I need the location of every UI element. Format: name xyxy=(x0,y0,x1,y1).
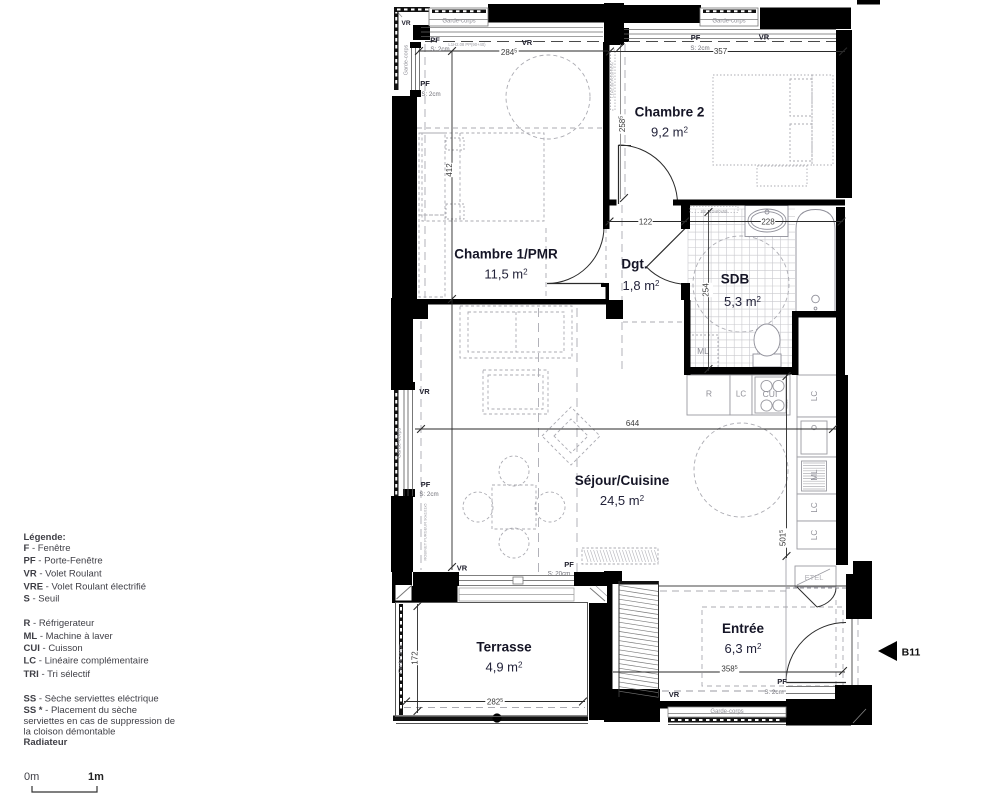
svg-text:VR: VR xyxy=(419,387,430,396)
svg-text:Garde-corps.: Garde-corps. xyxy=(398,643,404,673)
svg-text:PF: PF xyxy=(691,33,701,42)
svg-text:Dgt.: Dgt. xyxy=(621,257,647,272)
svg-text:SDB: SDB xyxy=(721,272,750,287)
svg-text:122: 122 xyxy=(639,218,653,227)
svg-text:0m: 0m xyxy=(24,771,39,783)
svg-text:Chambre 2: Chambre 2 xyxy=(635,105,705,120)
svg-text:ETEL: ETEL xyxy=(805,573,824,582)
svg-text:1m: 1m xyxy=(88,771,104,783)
svg-text:VR: VR xyxy=(759,33,770,42)
svg-text:LC: LC xyxy=(810,502,819,512)
svg-text:VR: VR xyxy=(457,564,468,573)
svg-text:SS 112x60x55: SS 112x60x55 xyxy=(701,209,729,214)
svg-text:R: R xyxy=(706,389,712,399)
svg-text:6,3 m2: 6,3 m2 xyxy=(724,641,762,656)
svg-text:SS - Sèche serviettes eléctriq: SS - Sèche serviettes eléctrique xyxy=(24,694,159,705)
svg-text:PF: PF xyxy=(421,480,431,489)
svg-text:Garde-corps: Garde-corps xyxy=(710,709,743,715)
svg-text:ML: ML xyxy=(697,346,709,356)
svg-text:S: 2cm: S: 2cm xyxy=(764,689,783,696)
svg-text:S: 2cm: S: 2cm xyxy=(690,45,709,52)
svg-text:S: 2cm: S: 2cm xyxy=(430,46,449,53)
svg-text:LC: LC xyxy=(810,391,819,401)
svg-text:357: 357 xyxy=(714,47,728,56)
svg-text:S: 2cm: S: 2cm xyxy=(419,491,438,498)
svg-text:LC - Linéaire complémentaire: LC - Linéaire complémentaire xyxy=(24,656,149,667)
svg-text:TRI - Tri sélectif: TRI - Tri sélectif xyxy=(24,669,91,680)
svg-text:PF: PF xyxy=(420,79,430,88)
svg-text:4,9 m2: 4,9 m2 xyxy=(485,660,523,675)
svg-text:Terrasse: Terrasse xyxy=(476,640,532,655)
svg-text:644: 644 xyxy=(626,419,640,428)
svg-text:S - Seuil: S - Seuil xyxy=(24,594,60,605)
svg-text:S: 20cm: S: 20cm xyxy=(548,571,571,578)
svg-text:Garde-corps: Garde-corps xyxy=(442,19,475,25)
svg-text:VR - Volet Roulant: VR - Volet Roulant xyxy=(24,569,103,580)
svg-text:CUI: CUI xyxy=(763,389,778,399)
svg-text:VRE - Volet Roulant électrifié: VRE - Volet Roulant électrifié xyxy=(24,581,147,592)
svg-text:24,5 m2: 24,5 m2 xyxy=(600,493,645,508)
svg-text:VR: VR xyxy=(522,38,533,47)
svg-text:F - Fenêtre: F - Fenêtre xyxy=(24,543,71,554)
svg-text:254: 254 xyxy=(702,283,711,297)
svg-text:Garde-corps: Garde-corps xyxy=(404,44,410,75)
svg-text:Entrée: Entrée xyxy=(722,621,765,636)
svg-text:Garde-corps: Garde-corps xyxy=(712,19,745,25)
svg-text:1,8 m2: 1,8 m2 xyxy=(623,278,661,293)
svg-text:la cloison démontable: la cloison démontable xyxy=(24,727,116,738)
svg-text:Légende:: Légende: xyxy=(24,532,66,543)
svg-text:VR: VR xyxy=(401,20,410,27)
svg-text:PF: PF xyxy=(430,36,440,45)
svg-text:11,5 m2: 11,5 m2 xyxy=(484,267,528,282)
svg-text:VR: VR xyxy=(669,690,680,699)
svg-text:S: 2cm: S: 2cm xyxy=(421,91,440,98)
svg-text:ROBINET PURGEUR 90x101x5: ROBINET PURGEUR 90x101x5 xyxy=(423,503,428,561)
svg-text:172: 172 xyxy=(411,651,420,665)
svg-text:ML: ML xyxy=(810,469,819,481)
svg-text:serviettes en cas de suppressi: serviettes en cas de suppression de xyxy=(24,716,176,727)
svg-text:228: 228 xyxy=(761,218,775,227)
svg-text:R - Réfrigerateur: R - Réfrigerateur xyxy=(24,618,95,629)
svg-text:CUI - Cuisson: CUI - Cuisson xyxy=(24,643,83,654)
svg-text:412: 412 xyxy=(445,163,454,177)
svg-text:Garde-corps: Garde-corps xyxy=(397,427,403,458)
svg-text:PF: PF xyxy=(564,560,574,569)
svg-text:ML - Machine à laver: ML - Machine à laver xyxy=(24,631,113,642)
svg-text:PF: PF xyxy=(777,677,787,686)
svg-text:B11: B11 xyxy=(902,647,921,659)
svg-text:Séjour/Cuisine: Séjour/Cuisine xyxy=(575,473,670,488)
svg-text:PF - Porte-Fenêtre: PF - Porte-Fenêtre xyxy=(24,556,103,567)
svg-text:SS * - Placement du sèche: SS * - Placement du sèche xyxy=(24,705,138,716)
svg-text:9,2 m2: 9,2 m2 xyxy=(651,125,689,140)
svg-text:Chambre 1/PMR: Chambre 1/PMR xyxy=(454,247,558,262)
svg-text:5,3 m2: 5,3 m2 xyxy=(724,294,762,309)
svg-text:Radiateur: Radiateur xyxy=(24,737,68,748)
svg-text:LC: LC xyxy=(810,530,819,540)
svg-text:LC: LC xyxy=(736,390,746,399)
svg-text:L1H2.08 PP(90+40): L1H2.08 PP(90+40) xyxy=(448,42,486,47)
